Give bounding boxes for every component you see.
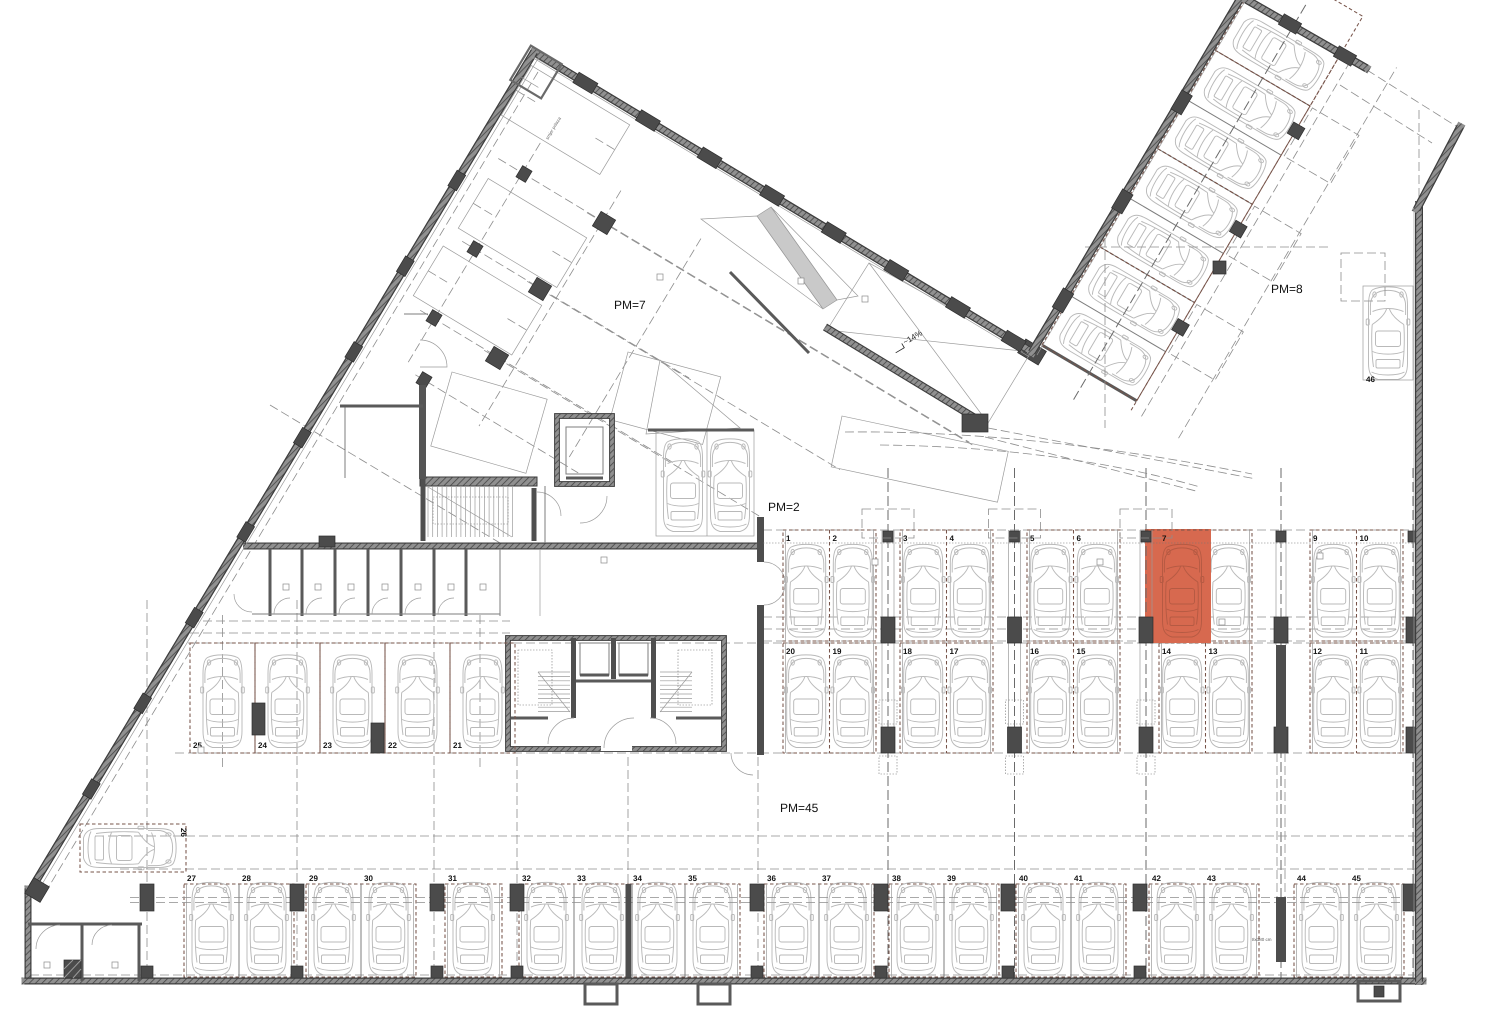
svg-text:42: 42: [1152, 874, 1161, 883]
svg-text:6: 6: [1077, 534, 1082, 543]
svg-text:39: 39: [947, 874, 956, 883]
svg-text:37: 37: [822, 874, 831, 883]
svg-text:40: 40: [1019, 874, 1028, 883]
svg-text:8x180 cm: 8x180 cm: [1252, 937, 1272, 942]
svg-text:2: 2: [833, 534, 838, 543]
svg-text:24: 24: [258, 741, 267, 750]
svg-text:14: 14: [1162, 647, 1171, 656]
svg-text:PM=7: PM=7: [614, 298, 646, 312]
svg-text:43: 43: [1207, 874, 1216, 883]
svg-text:29: 29: [309, 874, 318, 883]
svg-text:31: 31: [448, 874, 457, 883]
svg-text:36: 36: [767, 874, 776, 883]
svg-text:13: 13: [1209, 647, 1218, 656]
svg-text:3: 3: [903, 534, 908, 543]
svg-text:10: 10: [1360, 534, 1369, 543]
svg-text:11: 11: [1360, 647, 1369, 656]
svg-text:15: 15: [1077, 647, 1086, 656]
svg-text:34: 34: [633, 874, 642, 883]
svg-text:16: 16: [1030, 647, 1039, 656]
svg-text:22: 22: [388, 741, 397, 750]
svg-text:35: 35: [688, 874, 697, 883]
svg-text:9: 9: [1313, 534, 1318, 543]
svg-text:46: 46: [1366, 375, 1375, 384]
svg-text:45: 45: [1352, 874, 1361, 883]
svg-text:21: 21: [453, 741, 462, 750]
svg-text:26: 26: [179, 828, 188, 837]
svg-text:4: 4: [950, 534, 955, 543]
svg-text:7: 7: [1162, 534, 1167, 543]
svg-text:27: 27: [187, 874, 196, 883]
svg-text:19: 19: [833, 647, 842, 656]
svg-text:38: 38: [892, 874, 901, 883]
svg-text:23: 23: [323, 741, 332, 750]
svg-text:32: 32: [522, 874, 531, 883]
svg-text:5: 5: [1030, 534, 1035, 543]
svg-text:41: 41: [1074, 874, 1083, 883]
svg-text:28: 28: [242, 874, 251, 883]
svg-text:12: 12: [1313, 647, 1322, 656]
svg-text:33: 33: [577, 874, 586, 883]
svg-text:17: 17: [950, 647, 959, 656]
svg-text:30: 30: [364, 874, 373, 883]
svg-text:1: 1: [786, 534, 791, 543]
svg-text:PM=45: PM=45: [780, 801, 819, 815]
svg-text:20: 20: [786, 647, 795, 656]
svg-text:PM=8: PM=8: [1271, 282, 1303, 296]
svg-text:44: 44: [1297, 874, 1306, 883]
svg-text:18: 18: [903, 647, 912, 656]
svg-text:PM=2: PM=2: [768, 500, 800, 514]
